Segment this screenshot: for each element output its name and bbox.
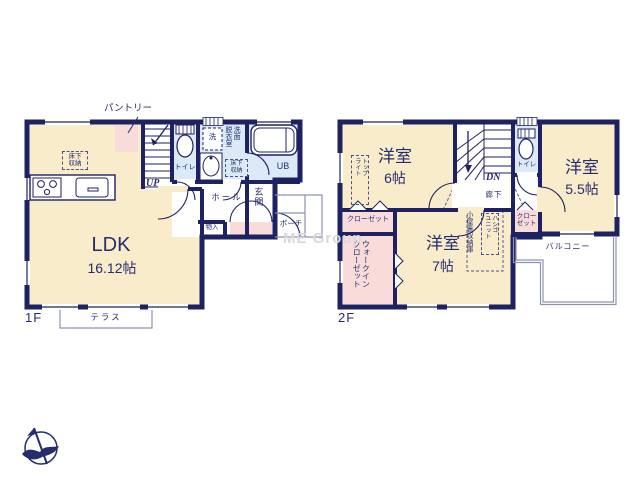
room6-size-label: 6帖	[361, 170, 429, 186]
stairs-down-label: DN	[486, 172, 500, 184]
toilet-icon-1f	[176, 125, 194, 157]
hatched-window-washroom	[203, 118, 223, 126]
walkin-closet-label: ウォークイン クローゼット	[352, 240, 370, 302]
closet-left-label: クローゼット	[343, 216, 393, 224]
skylight-label: トップ ライト	[351, 155, 369, 205]
underfloor-storage-ldk-label: 床下 収納	[62, 151, 88, 170]
watermark-text: ME Group	[283, 230, 363, 247]
floor1-plan-graphic	[20, 103, 330, 333]
underfloor-storage-wash-label: 床下 収納	[225, 159, 248, 177]
ldk-room-label: LDK	[83, 234, 139, 257]
floorplan-page: { "watermark": "ME Group", "floor1": { "…	[0, 0, 640, 480]
bathtub-icon	[251, 125, 297, 155]
washbasin-icon	[200, 153, 222, 180]
pantry-label: パントリー	[104, 104, 152, 115]
corridor-label: 廊下	[480, 191, 508, 200]
ldk-size-label: 16.12帖	[70, 260, 154, 276]
room55-name-label: 洋室	[551, 158, 613, 178]
compass-north-icon	[14, 418, 70, 476]
floorplan-2f: 洋室 6帖 トップ ライト 洋室 5.5帖 トイレ DN 廊下 クローゼット ウ…	[335, 103, 640, 333]
porch-label: ポーチ	[276, 220, 306, 229]
toilet-1f-label: トイレ	[172, 164, 198, 172]
room6-name-label: 洋室	[361, 147, 429, 167]
room-pantry-area	[115, 125, 138, 152]
attic-storage-label: 小屋裏収納庫	[465, 211, 473, 273]
toilet-2f-label: トイレ	[514, 161, 539, 168]
stairs-up-label: UP	[146, 178, 159, 190]
unit-bath-label: UB	[270, 161, 296, 171]
ladder-unit-label: ハシゴ ユニット	[481, 213, 499, 255]
room7-size-label: 7帖	[413, 258, 473, 274]
balcony-label: バルコニー	[540, 242, 596, 251]
hatched-window-toilet2f	[517, 118, 537, 126]
terrace-label: テラス	[60, 313, 152, 323]
closet-right-label: クロー ゼット	[514, 213, 539, 228]
kitchen-counter-icon	[30, 175, 115, 200]
room55-size-label: 5.5帖	[551, 181, 613, 197]
hall-label: ホール	[203, 193, 251, 203]
toilet-icon-2f	[518, 129, 535, 159]
storage-monoire-label: 物入	[200, 224, 224, 231]
washer-label: 洗	[205, 133, 220, 142]
floor2-tag: 2F	[338, 311, 355, 326]
entrance-label: 玄関	[253, 187, 263, 223]
floorplan-1f: パントリー 床下 収納 LDK 16.12帖 トイレ 洗 洗面 脱衣室 床下 収…	[20, 103, 330, 333]
room7-name-label: 洋室	[413, 234, 473, 254]
room-55jo-area	[540, 122, 617, 234]
floor1-tag: 1F	[25, 311, 42, 326]
